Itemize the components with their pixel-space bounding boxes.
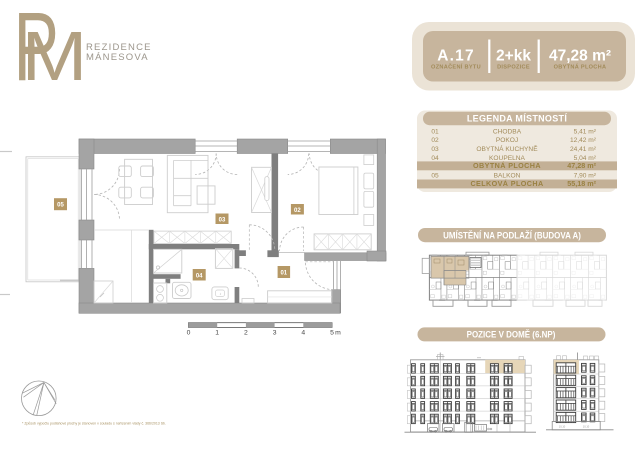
svg-text:POKOJ: POKOJ [496,137,518,144]
svg-text:04: 04 [431,155,439,162]
svg-text:2+kk: 2+kk [496,48,531,65]
svg-text:LEGENDA MÍSTNOSTÍ: LEGENDA MÍSTNOSTÍ [467,113,567,123]
svg-text:1: 1 [215,329,219,336]
svg-text:03: 03 [219,217,226,223]
svg-text:02: 02 [431,137,439,144]
svg-text:DISPOZICE: DISPOZICE [497,65,530,71]
svg-text:04: 04 [196,274,203,280]
svg-text:05: 05 [431,173,439,180]
svg-text:24,41 m²: 24,41 m² [570,146,597,153]
svg-text:M: M [22,16,88,95]
svg-text:02: 02 [294,208,301,214]
svg-text:OZNAČENÍ BYTU: OZNAČENÍ BYTU [431,63,481,71]
svg-text:47,28 m²: 47,28 m² [549,48,611,65]
svg-text:10,10: 10,10 [583,425,590,429]
svg-text:MÁNESOVA: MÁNESOVA [86,52,149,63]
svg-text:OBYTNÁ KUCHYNĚ: OBYTNÁ KUCHYNĚ [476,144,538,153]
svg-text:CELKOVÁ PLOCHA: CELKOVÁ PLOCHA [470,179,543,188]
svg-text:01: 01 [431,128,439,135]
svg-text:m: m [335,329,341,336]
svg-text:03: 03 [431,146,439,153]
svg-text:5: 5 [330,329,334,336]
svg-text:OBYTNÁ PLOCHA: OBYTNÁ PLOCHA [473,161,541,170]
svg-text:POZICE V DOMĚ (6.NP): POZICE V DOMĚ (6.NP) [467,328,556,340]
svg-text:UMÍSTĚNÍ NA PODLAŽÍ (BUDOVA A): UMÍSTĚNÍ NA PODLAŽÍ (BUDOVA A) [443,229,581,241]
svg-text:0: 0 [187,329,191,336]
svg-text:10,10: 10,10 [559,425,566,429]
svg-text:OBYTNÁ PLOCHA: OBYTNÁ PLOCHA [554,64,607,71]
svg-text:5,41 m²: 5,41 m² [574,128,597,135]
svg-text:55,18 m²: 55,18 m² [567,179,596,188]
svg-text:47,28 m²: 47,28 m² [567,161,596,170]
svg-text:3: 3 [273,329,277,336]
svg-text:12,42 m²: 12,42 m² [570,137,597,144]
svg-text:01: 01 [280,271,287,277]
svg-text:05: 05 [57,203,64,209]
svg-text:CHODBA: CHODBA [493,128,522,135]
svg-text:4: 4 [301,329,305,336]
svg-text:A.17: A.17 [437,48,475,65]
svg-text:2: 2 [244,329,248,336]
svg-text:* Způsob výpočtu podlahové plo: * Způsob výpočtu podlahové plochy je sta… [22,422,166,426]
